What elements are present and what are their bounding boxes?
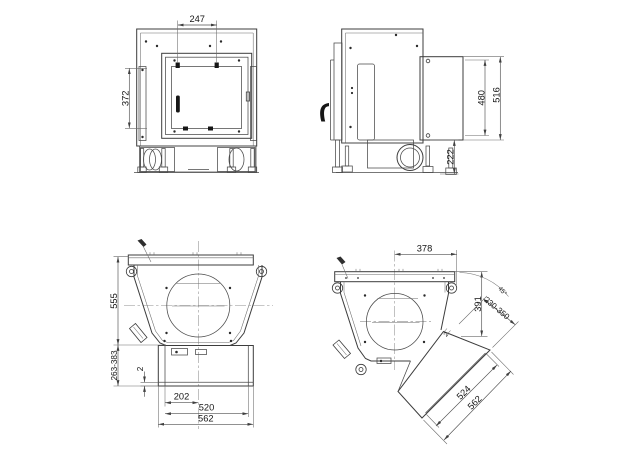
dim-plan-extension-range: 263-383 [110,350,119,380]
dim-plan-center-offset: 202 [174,392,190,402]
exhaust-duct [158,346,253,387]
left-trim [139,67,146,141]
front-foot [336,140,340,167]
bottom-bracket [172,349,188,356]
dim-front-door-height: 372 [121,91,131,107]
technical-drawing: 247 372 [0,0,624,460]
dim-rotated-extension-range: 230-350 [482,295,511,321]
dim-rotated-center-offset: 378 [417,243,433,253]
mount-tab-left [126,266,136,276]
front-base [134,146,259,173]
plan-view: 555 263-383 2 202 520 562 [109,239,273,429]
side-base [336,140,458,175]
mount-tab-bottom [356,364,366,374]
bottom-clamp-right [208,127,213,131]
side-slot [358,64,375,140]
front-view: 247 372 [121,14,260,173]
door-handle-front [176,96,180,113]
door-handle-side [320,103,329,122]
flue-collar-circle [397,145,423,171]
plan-rotated-view: 2 378 391 45° 230-350 524 562 [332,243,518,444]
vent-oval-right [229,148,244,171]
front-panel-edge [334,43,342,140]
bottom-clamp-left [183,127,188,131]
plan-front-bar [128,255,253,265]
dim-plan-depth: 555 [109,293,119,309]
firebox-door [162,53,252,138]
dim-side-outer-height: 516 [492,87,502,103]
drawing-sheet: 247 372 [0,0,624,460]
dim-rotated-outer-width: 562 [466,394,484,412]
side-body-outline [342,29,423,143]
mount-tab-right [446,283,456,293]
leader-flag-icon [138,239,152,262]
top-clamp-left [176,63,180,69]
dim-side-base-height: 222 [446,149,456,165]
top-clamp-right [215,63,219,69]
dim-rotated-pivot-depth: 391 [473,296,483,312]
side-view: 480 516 222 [320,29,504,175]
rear-convection-box [420,57,463,140]
dim-plan-plate-gap: 2 [136,366,145,371]
mount-tab-left [332,283,342,293]
dim-front-top-width: 247 [189,14,205,24]
leader-flag-icon [337,257,349,279]
dim-side-inner-height: 480 [476,90,486,106]
dim-plan-inner-width: 520 [199,403,215,413]
dim-plan-outer-width: 562 [198,413,214,423]
